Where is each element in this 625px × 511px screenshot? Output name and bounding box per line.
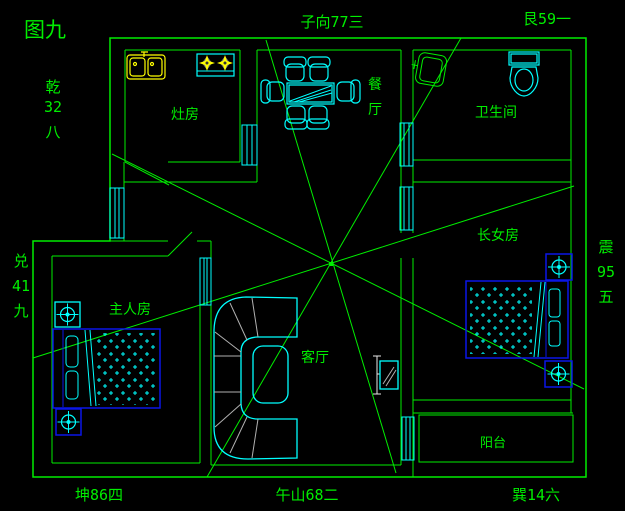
compass-nw-star: 八 [45, 123, 60, 141]
compass-sw-label: 坤86四 [75, 486, 123, 504]
mattress-dots [470, 285, 532, 354]
compass-se-label: 巽14六 [512, 486, 560, 504]
room-label-bathroom: 卫生间 [475, 105, 517, 121]
compass-w-char: 兑 [13, 252, 28, 270]
compass-nw-num: 32 [44, 98, 62, 116]
compass-nw-char: 乾 [45, 78, 60, 96]
compass-w-num: 41 [12, 277, 30, 295]
room-label-dining-1: 餐 [368, 77, 382, 93]
room-label-balcony: 阳台 [480, 436, 506, 451]
compass-s-label: 午山68二 [275, 486, 338, 504]
room-label-daughter-bedroom: 长女房 [477, 227, 519, 244]
compass-w-star: 九 [13, 302, 28, 320]
room-label-living-room: 客厅 [301, 349, 329, 366]
figure-title: 图九 [24, 18, 66, 42]
compass-e-num: 95 [597, 263, 615, 281]
compass-ne-label: 艮59一 [523, 10, 571, 28]
mattress-dots [97, 333, 157, 405]
compass-e-star: 五 [598, 288, 613, 306]
room-label-dining-2: 厅 [368, 102, 382, 118]
room-label-kitchen: 灶房 [171, 107, 199, 123]
center-point-marker [329, 262, 333, 266]
cad-floorplan-canvas: 图九 乾 32 八 子向77三 艮59一 震 95 五 巽14六 午山68二 坤… [0, 0, 625, 511]
room-label-master-bedroom: 主人房 [109, 302, 151, 318]
compass-n-label: 子向77三 [300, 13, 363, 31]
compass-e-char: 震 [598, 238, 613, 256]
floorplan-drawing: 图九 乾 32 八 子向77三 艮59一 震 95 五 巽14六 午山68二 坤… [0, 0, 625, 511]
